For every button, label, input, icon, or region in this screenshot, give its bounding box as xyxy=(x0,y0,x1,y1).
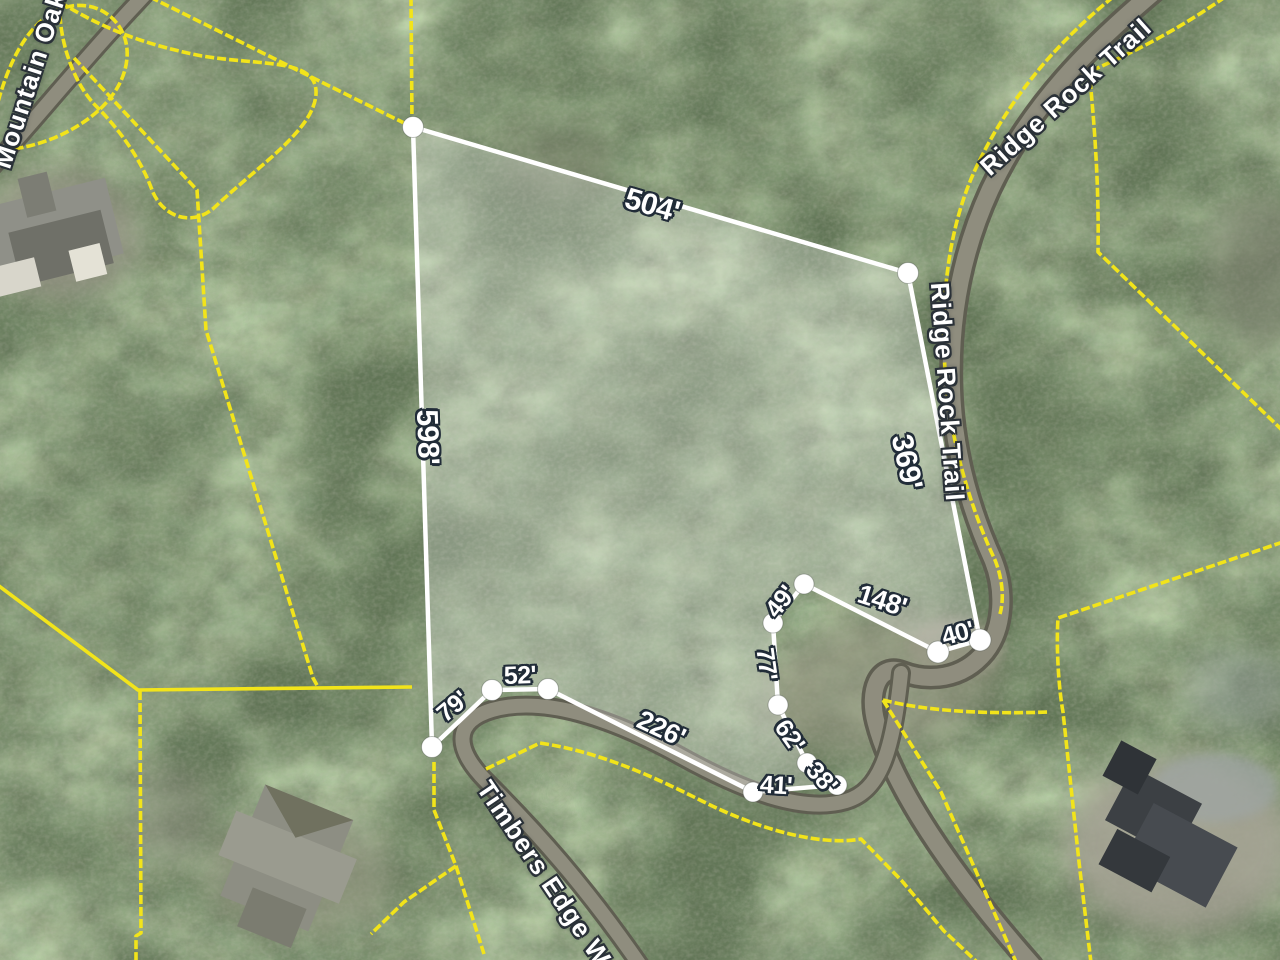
map-canvas[interactable]: Ridge Rock Trail Ridge Rock Trail Mounta… xyxy=(0,0,1280,960)
satellite-scene xyxy=(0,0,1280,960)
